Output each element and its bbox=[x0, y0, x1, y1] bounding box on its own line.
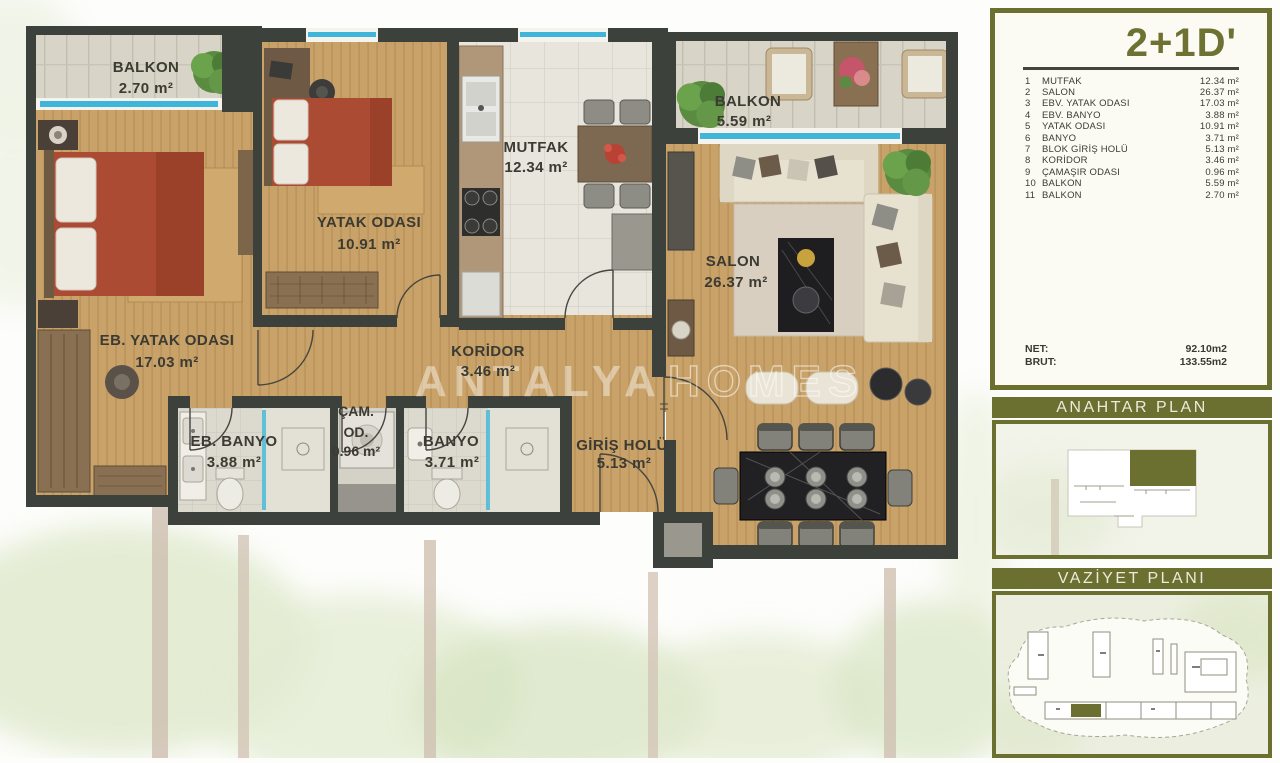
toilet bbox=[434, 479, 460, 509]
label-living-room: SALON bbox=[706, 253, 761, 270]
net-row: NET:92.10m2 bbox=[1025, 343, 1227, 356]
legend-row: 8KORİDOR3.46 m² bbox=[1025, 155, 1239, 166]
unit-block-highlight bbox=[1071, 704, 1101, 717]
area-corridor: 3.46 m² bbox=[461, 363, 516, 380]
title-divider bbox=[1023, 67, 1239, 70]
legend-row: 9ÇAMAŞIR ODASI0.96 m² bbox=[1025, 167, 1239, 178]
label-master-bath: EB. BANYO bbox=[191, 433, 278, 450]
unit-highlight bbox=[1130, 450, 1196, 486]
bed-headboard bbox=[44, 150, 54, 298]
dresser bbox=[94, 466, 166, 496]
floor-plan: ANTALYA HOMES BALKON 2.70 m² EB. YATAK O… bbox=[26, 26, 958, 568]
key-plan-panel: ANAHTAR PLAN bbox=[992, 397, 1272, 559]
label-laundry-2: OD. bbox=[344, 424, 369, 440]
watermark-outline: HOMES bbox=[668, 357, 864, 406]
appliance bbox=[462, 272, 500, 316]
room-legend: 1MUTFAK12.34 m² 2SALON26.37 m² 3EBV. YAT… bbox=[1025, 76, 1239, 201]
label-master-bedroom: EB. YATAK ODASI bbox=[100, 332, 235, 349]
site-plan-header: VAZİYET PLANI bbox=[992, 568, 1272, 589]
legend-row: 11BALKON2.70 m² bbox=[1025, 190, 1239, 201]
side-cabinet bbox=[238, 150, 254, 255]
area-entry-hall: 5.13 m² bbox=[597, 455, 652, 472]
area-bedroom: 10.91 m² bbox=[337, 236, 400, 253]
legend-row: 6BANYO3.71 m² bbox=[1025, 133, 1239, 144]
pillow bbox=[56, 228, 96, 290]
console bbox=[668, 152, 694, 250]
watermark-bold: ANTALYA bbox=[415, 357, 663, 406]
decor-bowl bbox=[797, 249, 815, 267]
legend-row: 1MUTFAK12.34 m² bbox=[1025, 76, 1239, 87]
unit-info-panel: 2+1D' 1MUTFAK12.34 m² 2SALON26.37 m² 3EB… bbox=[990, 8, 1272, 390]
laundry-shaft-floor bbox=[338, 484, 396, 512]
legend-row: 2SALON26.37 m² bbox=[1025, 87, 1239, 98]
shower-glass bbox=[262, 410, 266, 510]
pillow bbox=[56, 158, 96, 222]
floor-plan-page: ANTALYA HOMES BALKON 2.70 m² EB. YATAK O… bbox=[0, 0, 1280, 758]
key-plan-tree bbox=[1051, 479, 1059, 555]
unit-type-title: 2+1D' bbox=[995, 23, 1237, 63]
label-balcony-topright: BALKON bbox=[715, 93, 782, 110]
area-balcony-topleft: 2.70 m² bbox=[119, 80, 174, 97]
coffee-table bbox=[905, 379, 931, 405]
shower-glass bbox=[486, 410, 490, 510]
site-plan-drawing bbox=[996, 595, 1268, 754]
shower-floor bbox=[488, 408, 560, 512]
area-kitchen: 12.34 m² bbox=[504, 159, 567, 176]
area-master-bedroom: 17.03 m² bbox=[135, 354, 198, 371]
label-balcony-topleft: BALKON bbox=[113, 59, 180, 76]
label-corridor: KORİDOR bbox=[451, 343, 525, 360]
coffee-table bbox=[870, 368, 902, 400]
site-plan-body bbox=[992, 591, 1272, 758]
net-brut-summary: NET:92.10m2 BRUT:133.55m2 bbox=[1025, 343, 1227, 369]
legend-row: 5YATAK ODASI10.91 m² bbox=[1025, 121, 1239, 132]
sideboard bbox=[612, 214, 654, 270]
legend-row: 7BLOK GİRİŞ HOLÜ5.13 m² bbox=[1025, 144, 1239, 155]
key-plan-body bbox=[992, 420, 1272, 559]
key-plan-drawing bbox=[996, 424, 1268, 555]
master-shower-floor bbox=[262, 408, 330, 512]
faucet bbox=[478, 105, 484, 111]
area-laundry: 0.96 m² bbox=[332, 443, 381, 459]
legend-row: 4EBV. BANYO3.88 m² bbox=[1025, 110, 1239, 121]
label-bathroom: BANYO bbox=[423, 433, 479, 450]
pillow bbox=[274, 144, 308, 184]
area-bathroom: 3.71 m² bbox=[425, 454, 480, 471]
pillow bbox=[274, 100, 308, 140]
mirror bbox=[672, 321, 690, 339]
label-bedroom: YATAK ODASI bbox=[317, 214, 421, 231]
bed-headboard bbox=[264, 96, 272, 186]
brut-row: BRUT:133.55m2 bbox=[1025, 356, 1227, 369]
legend-row: 10BALKON5.59 m² bbox=[1025, 178, 1239, 189]
area-living-room: 26.37 m² bbox=[704, 274, 767, 291]
nightstand bbox=[38, 300, 78, 328]
area-balcony-topright: 5.59 m² bbox=[717, 113, 772, 130]
site-plan-panel: VAZİYET PLANI bbox=[992, 568, 1272, 758]
toilet bbox=[217, 478, 243, 510]
label-laundry-1: ÇAM. bbox=[338, 403, 374, 419]
key-plan-header: ANAHTAR PLAN bbox=[992, 397, 1272, 418]
label-kitchen: MUTFAK bbox=[504, 139, 569, 156]
label-entry-hall: GİRİŞ HOLÜ bbox=[576, 437, 668, 454]
laptop bbox=[269, 61, 293, 80]
legend-row: 3EBV. YATAK ODASI17.03 m² bbox=[1025, 98, 1239, 109]
area-master-bath: 3.88 m² bbox=[207, 454, 262, 471]
shaft-interior bbox=[664, 523, 702, 557]
